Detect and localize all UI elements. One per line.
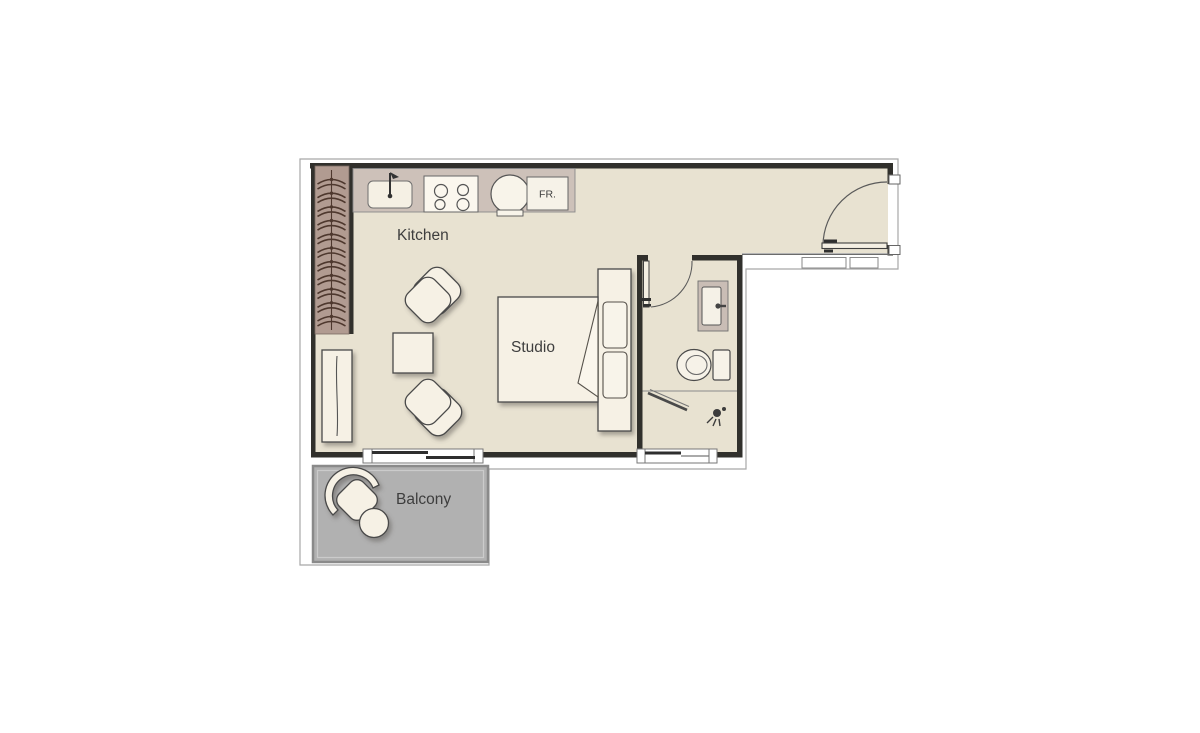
- entry-door-leaf: [822, 243, 887, 249]
- pillow: [603, 302, 627, 348]
- wall-bathroom-right: [737, 255, 743, 452]
- studio-label: Studio: [511, 339, 555, 356]
- door-handle: [640, 298, 651, 301]
- floor-plan-page: FR.: [0, 0, 1200, 733]
- balcony-round-table: [360, 509, 389, 538]
- door-frame-mark: [889, 175, 900, 184]
- balcony-sliding-door: [363, 449, 483, 463]
- balcony-label: Balcony: [396, 491, 451, 508]
- corridor-bottom-line: [742, 254, 893, 256]
- entry-threshold: [850, 258, 878, 269]
- fridge-label: FR.: [539, 189, 556, 201]
- toilet: [677, 350, 730, 381]
- entry-threshold: [802, 258, 846, 269]
- wall-bottom-middle: [482, 452, 638, 458]
- bed-headboard: [598, 269, 631, 431]
- stove: [424, 176, 478, 212]
- wall-bathroom-top-left: [637, 255, 648, 261]
- faucet-drain: [388, 194, 393, 199]
- kitchen-label: Kitchen: [397, 227, 449, 244]
- console-panel: [322, 350, 352, 442]
- door-handle: [824, 250, 833, 253]
- washing-machine-drum: [491, 175, 529, 213]
- pillow: [603, 352, 627, 398]
- washing-machine-base: [497, 210, 523, 216]
- wardrobe: [315, 166, 349, 334]
- bathroom-vanity: [698, 281, 728, 331]
- floor-plan: FR.: [0, 0, 1200, 733]
- square-side-table: [393, 333, 433, 373]
- wall-bottom-right: [715, 452, 743, 458]
- fridge: FR.: [527, 177, 568, 210]
- door-handle: [824, 240, 837, 243]
- balcony: [313, 466, 488, 562]
- toilet-bowl: [677, 350, 711, 381]
- kitchen-counter: FR.: [353, 169, 575, 217]
- door-handle: [643, 304, 651, 307]
- stove-body: [424, 176, 478, 212]
- bathroom-window: [637, 449, 717, 463]
- wall-bathroom-top-right: [692, 255, 743, 261]
- wall-bathroom-left: [637, 255, 643, 452]
- washing-machine: [491, 175, 529, 216]
- wall-bottom-left: [311, 452, 366, 458]
- wall-top: [310, 163, 893, 169]
- door-frame-mark: [889, 246, 900, 255]
- toilet-tank: [713, 350, 730, 380]
